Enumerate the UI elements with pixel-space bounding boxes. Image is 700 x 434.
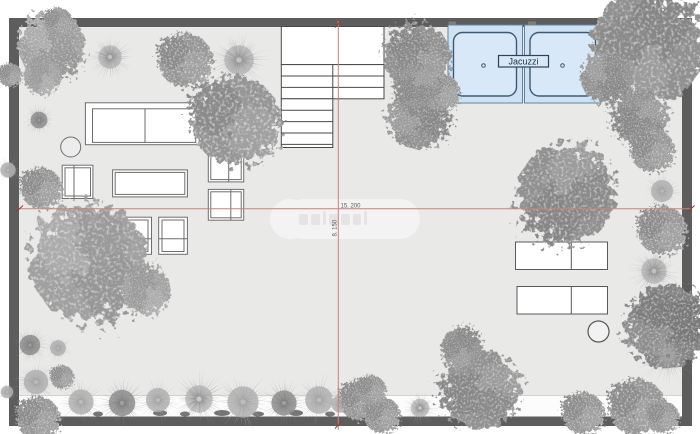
- svg-text:8. 150: 8. 150: [333, 219, 339, 236]
- svg-text:15. 200: 15. 200: [341, 204, 362, 210]
- svg-text:Jacuzzi: Jacuzzi: [508, 56, 538, 66]
